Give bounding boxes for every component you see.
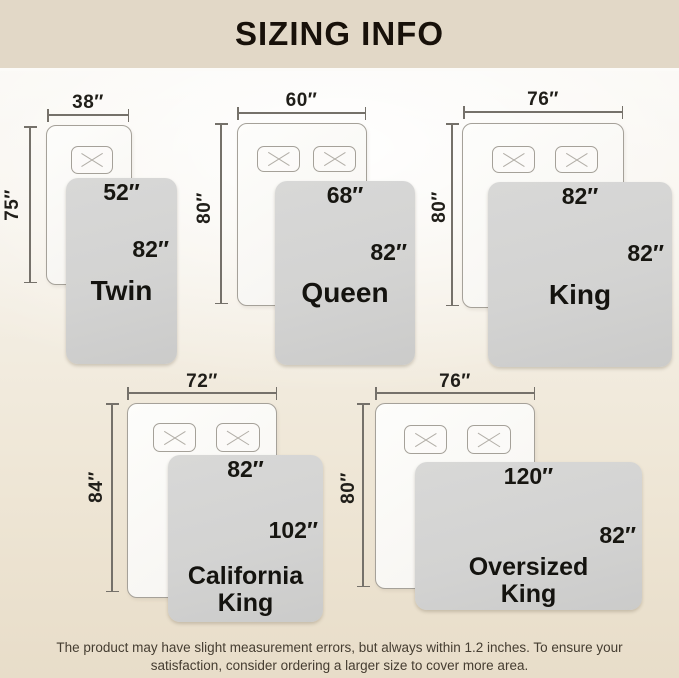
california-king-length-dimension-line — [111, 403, 113, 592]
queen-blanket-width-label: 68″ — [275, 182, 415, 209]
king-mattress-width-label: 76″ — [463, 89, 623, 111]
pillow — [467, 425, 511, 454]
disclaimer-text: The product may have slight measurement … — [12, 639, 667, 674]
pillow-x-icon — [217, 424, 259, 451]
king-size-name: King — [488, 280, 672, 310]
queen-size-name: Queen — [275, 278, 415, 308]
pillow-x-icon — [556, 147, 597, 172]
pillow — [153, 423, 196, 452]
king-blanket-width-label: 82″ — [488, 183, 672, 210]
pillow-x-icon — [154, 424, 195, 451]
california-king-blanket-length-label: 102″ — [269, 517, 318, 544]
pillow-x-icon — [314, 147, 355, 171]
king-mattress-length-label: 80″ — [429, 187, 451, 227]
queen-mattress-length-label: 80″ — [194, 188, 216, 228]
pillow — [404, 425, 447, 454]
pillow — [71, 146, 113, 174]
california-king-mattress-length-label: 84″ — [86, 467, 108, 507]
queen-length-dimension-line — [220, 123, 222, 304]
california-king-blanket: 82″ 102″ California King — [168, 455, 323, 622]
disclaimer-line-1: The product may have slight measurement … — [12, 639, 667, 657]
twin-size-name: Twin — [66, 276, 177, 306]
king-length-dimension-line — [451, 123, 453, 306]
twin-blanket: 52″ 82″ Twin — [66, 178, 177, 364]
queen-blanket: 68″ 82″ Queen — [275, 181, 415, 365]
twin-blanket-length-label: 82″ — [132, 236, 169, 263]
sizing-info-infographic: SIZING INFO 38″ 75″ 52″ 82″ Twin 60″ 80″… — [0, 0, 679, 678]
king-blanket-length-label: 82″ — [627, 240, 664, 267]
twin-blanket-width-label: 52″ — [66, 179, 177, 206]
pillow-x-icon — [72, 147, 112, 173]
pillow-x-icon — [258, 147, 299, 171]
queen-blanket-length-label: 82″ — [370, 239, 407, 266]
twin-length-dimension-line — [29, 126, 31, 283]
pillow — [492, 146, 535, 173]
california-king-size-name: California King — [168, 563, 323, 617]
queen-width-dimension-line — [237, 112, 366, 114]
california-king-mattress-width-label: 72″ — [127, 371, 277, 393]
pillow — [555, 146, 598, 173]
oversized-king-blanket-width-label: 120″ — [415, 463, 642, 490]
oversized-king-blanket: 120″ 82″ Oversized King — [415, 462, 642, 610]
oversized-king-mattress-length-label: 80″ — [338, 468, 360, 508]
pillow — [257, 146, 300, 172]
king-width-dimension-line — [463, 111, 623, 113]
disclaimer-line-2: satisfaction, consider ordering a larger… — [12, 657, 667, 675]
pillow-x-icon — [468, 426, 510, 453]
oversized-king-size-name: Oversized King — [415, 554, 642, 608]
page-title: SIZING INFO — [235, 15, 444, 53]
pillow — [313, 146, 356, 172]
oversized-king-blanket-length-label: 82″ — [599, 522, 636, 549]
twin-mattress-width-label: 38″ — [47, 92, 129, 114]
queen-mattress-width-label: 60″ — [237, 90, 366, 112]
header-bar: SIZING INFO — [0, 0, 679, 71]
pillow-x-icon — [405, 426, 446, 453]
california-king-width-dimension-line — [127, 392, 277, 394]
pillow — [216, 423, 260, 452]
king-blanket: 82″ 82″ King — [488, 182, 672, 367]
twin-mattress-length-label: 75″ — [2, 185, 24, 225]
pillow-x-icon — [493, 147, 534, 172]
oversized-king-mattress-width-label: 76″ — [375, 371, 535, 393]
oversized-king-width-dimension-line — [375, 392, 535, 394]
california-king-blanket-width-label: 82″ — [168, 456, 323, 483]
twin-width-dimension-line — [47, 114, 129, 116]
oversized-king-length-dimension-line — [362, 403, 364, 587]
